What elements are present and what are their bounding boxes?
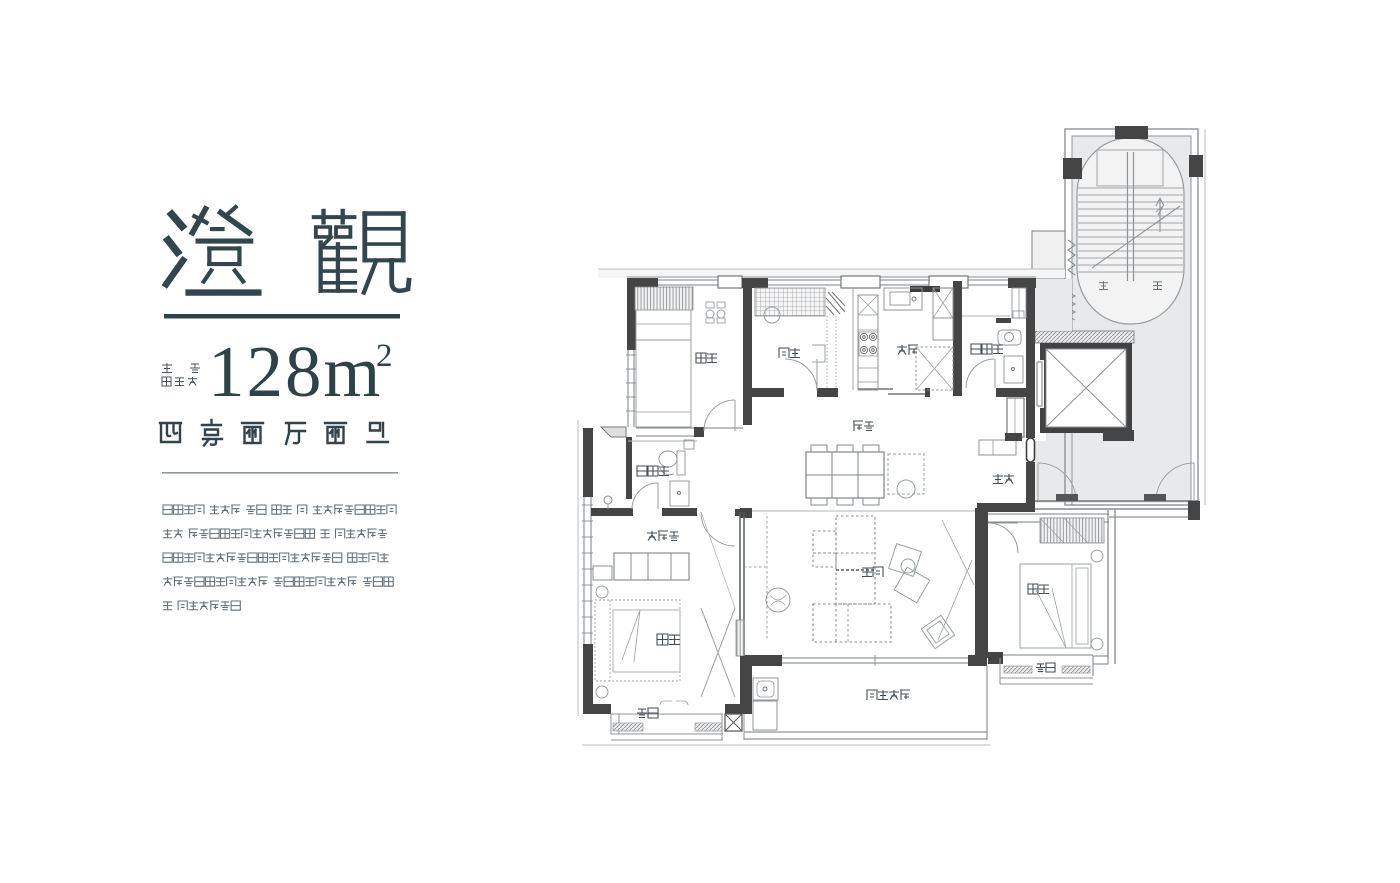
svg-text:2: 2 — [376, 338, 393, 374]
svg-text:128m: 128m — [208, 331, 382, 412]
